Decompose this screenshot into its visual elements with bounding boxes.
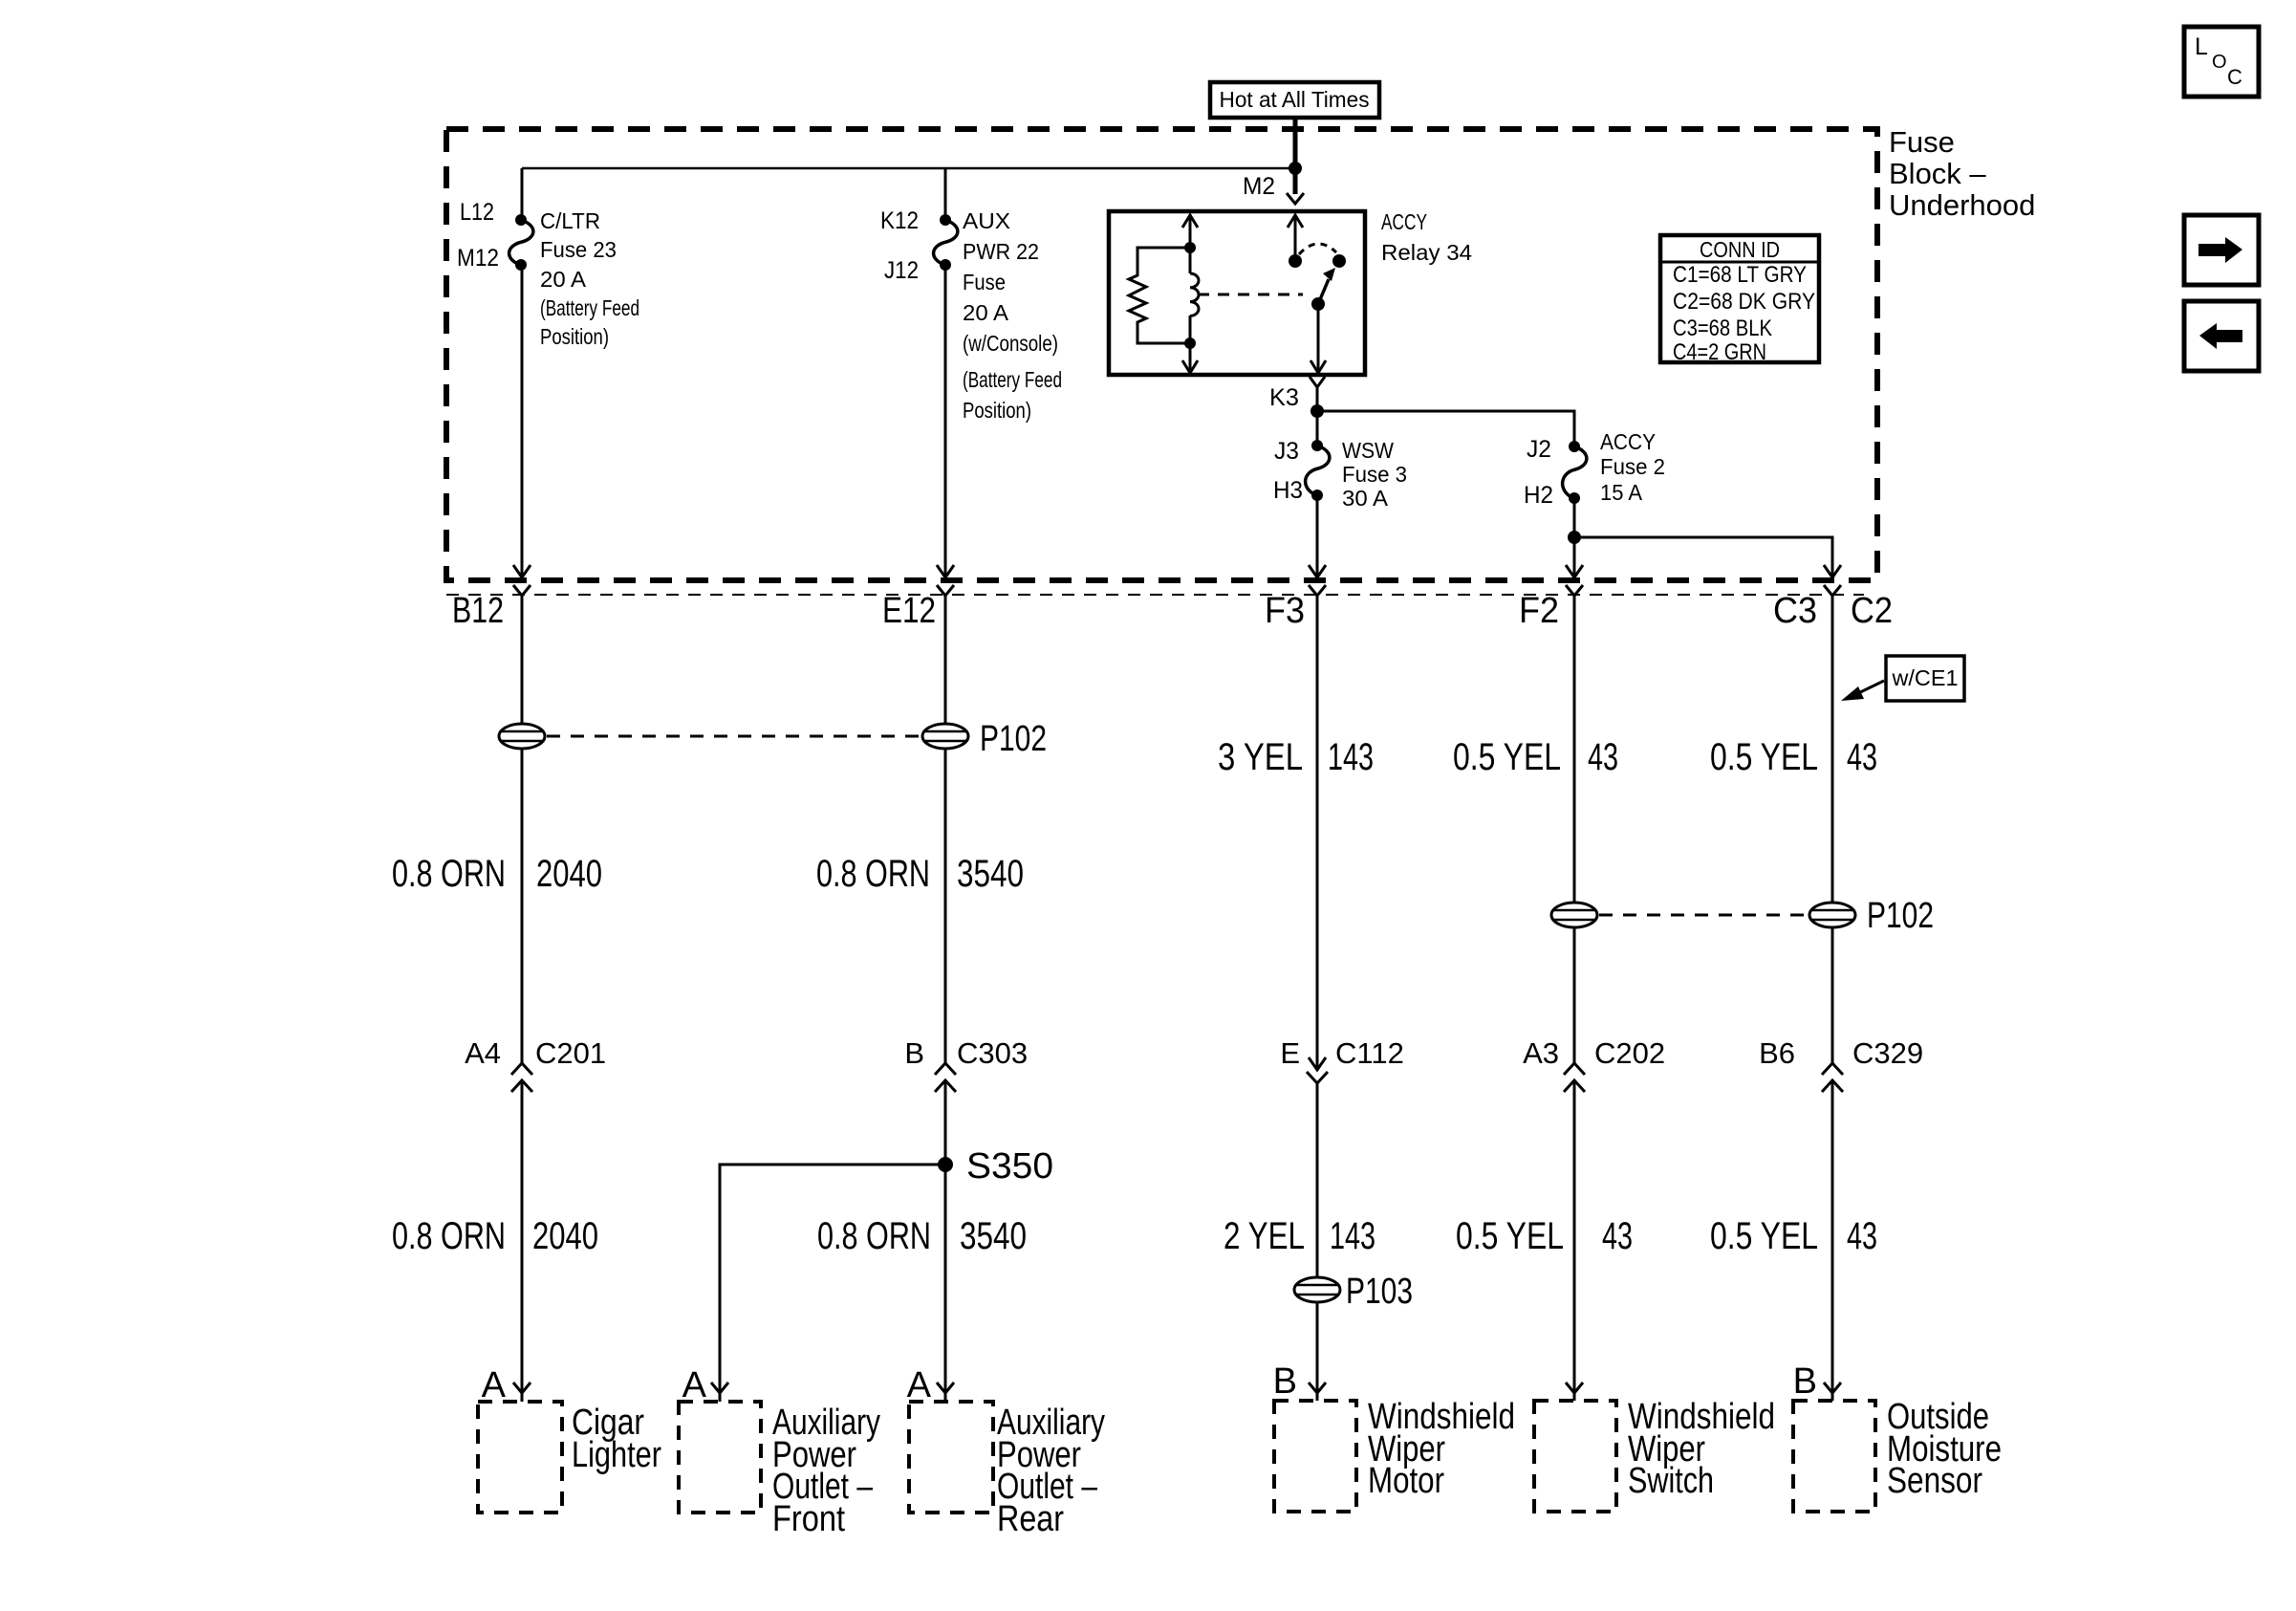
svg-text:0.8 ORN: 0.8 ORN bbox=[817, 1215, 931, 1257]
svg-text:C3=68 BLK: C3=68 BLK bbox=[1673, 316, 1772, 341]
svg-text:20 A: 20 A bbox=[963, 300, 1009, 325]
svg-text:143: 143 bbox=[1330, 1215, 1375, 1257]
svg-text:P102: P102 bbox=[1867, 896, 1934, 936]
svg-text:(Battery Feed: (Battery Feed bbox=[540, 295, 639, 320]
svg-text:Fuse 2: Fuse 2 bbox=[1600, 454, 1665, 479]
svg-text:Block –: Block – bbox=[1889, 157, 1986, 190]
svg-text:0.5 YEL: 0.5 YEL bbox=[1710, 736, 1818, 778]
svg-text:3540: 3540 bbox=[957, 853, 1024, 895]
svg-text:WSW: WSW bbox=[1342, 438, 1394, 463]
svg-text:C3: C3 bbox=[1773, 591, 1817, 631]
svg-text:Motor: Motor bbox=[1368, 1461, 1444, 1501]
svg-text:Fuse: Fuse bbox=[1889, 125, 1955, 159]
svg-text:43: 43 bbox=[1847, 1215, 1877, 1257]
svg-text:C2=68 DK GRY: C2=68 DK GRY bbox=[1673, 289, 1815, 315]
svg-text:H3: H3 bbox=[1273, 477, 1303, 504]
svg-text:C329: C329 bbox=[1852, 1036, 1923, 1070]
svg-text:K12: K12 bbox=[880, 207, 919, 234]
svg-text:ACCY: ACCY bbox=[1381, 209, 1427, 234]
svg-text:Rear: Rear bbox=[997, 1499, 1064, 1539]
svg-text:A4: A4 bbox=[465, 1036, 501, 1070]
svg-text:A: A bbox=[907, 1365, 932, 1405]
svg-text:J3: J3 bbox=[1274, 438, 1299, 465]
svg-text:0.8 ORN: 0.8 ORN bbox=[816, 853, 930, 895]
svg-text:0.5 YEL: 0.5 YEL bbox=[1456, 1215, 1564, 1257]
svg-text:2040: 2040 bbox=[536, 853, 602, 895]
svg-text:Fuse 3: Fuse 3 bbox=[1342, 462, 1407, 487]
svg-text:Relay 34: Relay 34 bbox=[1381, 240, 1472, 265]
svg-text:Switch: Switch bbox=[1628, 1461, 1714, 1501]
svg-text:C112: C112 bbox=[1335, 1036, 1404, 1070]
svg-text:L12: L12 bbox=[460, 199, 494, 226]
svg-text:0.5 YEL: 0.5 YEL bbox=[1453, 736, 1561, 778]
svg-text:C303: C303 bbox=[957, 1036, 1028, 1070]
svg-text:30 A: 30 A bbox=[1342, 486, 1389, 511]
svg-text:C4=2 GRN: C4=2 GRN bbox=[1673, 339, 1766, 365]
svg-text:15 A: 15 A bbox=[1600, 480, 1643, 505]
svg-text:J2: J2 bbox=[1527, 436, 1551, 463]
svg-text:AUX: AUX bbox=[963, 208, 1010, 233]
svg-text:B6: B6 bbox=[1759, 1036, 1795, 1070]
svg-text:Position): Position) bbox=[963, 398, 1031, 423]
svg-text:3 YEL: 3 YEL bbox=[1218, 736, 1303, 778]
svg-text:0.8 ORN: 0.8 ORN bbox=[392, 1215, 506, 1257]
svg-text:(Battery Feed: (Battery Feed bbox=[963, 367, 1062, 392]
svg-text:C1=68 LT GRY: C1=68 LT GRY bbox=[1673, 262, 1807, 288]
svg-text:Lighter: Lighter bbox=[572, 1435, 661, 1475]
svg-text:E12: E12 bbox=[882, 591, 936, 631]
svg-text:S350: S350 bbox=[966, 1146, 1053, 1186]
svg-text:P103: P103 bbox=[1346, 1272, 1413, 1312]
svg-text:A: A bbox=[682, 1365, 707, 1405]
svg-text:0.5 YEL: 0.5 YEL bbox=[1710, 1215, 1818, 1257]
svg-text:ACCY: ACCY bbox=[1600, 429, 1656, 454]
svg-text:0.8 ORN: 0.8 ORN bbox=[392, 853, 506, 895]
svg-text:CONN ID: CONN ID bbox=[1700, 237, 1780, 262]
svg-text:2 YEL: 2 YEL bbox=[1224, 1215, 1305, 1257]
svg-text:B: B bbox=[1273, 1361, 1297, 1402]
svg-text:Fuse: Fuse bbox=[963, 270, 1006, 294]
svg-text:P102: P102 bbox=[980, 719, 1047, 759]
svg-text:20 A: 20 A bbox=[540, 267, 587, 292]
svg-text:C202: C202 bbox=[1594, 1036, 1665, 1070]
svg-text:w/CE1: w/CE1 bbox=[1891, 665, 1958, 690]
svg-text:PWR 22: PWR 22 bbox=[963, 239, 1039, 264]
svg-text:3540: 3540 bbox=[960, 1215, 1027, 1257]
svg-text:Sensor: Sensor bbox=[1887, 1461, 1982, 1501]
svg-text:Hot at All Times: Hot at All Times bbox=[1220, 87, 1370, 112]
svg-text:2040: 2040 bbox=[532, 1215, 598, 1257]
svg-text:43: 43 bbox=[1847, 736, 1877, 778]
svg-text:H2: H2 bbox=[1524, 482, 1553, 509]
svg-text:J12: J12 bbox=[884, 257, 919, 284]
svg-text:B12: B12 bbox=[452, 591, 504, 631]
svg-text:A3: A3 bbox=[1523, 1036, 1559, 1070]
svg-text:K3: K3 bbox=[1269, 384, 1299, 411]
svg-text:M12: M12 bbox=[457, 245, 499, 272]
svg-text:143: 143 bbox=[1328, 736, 1374, 778]
svg-text:Position): Position) bbox=[540, 324, 609, 349]
svg-text:(w/Console): (w/Console) bbox=[963, 331, 1058, 356]
svg-text:43: 43 bbox=[1602, 1215, 1633, 1257]
svg-text:Front: Front bbox=[772, 1499, 845, 1539]
svg-text:C2: C2 bbox=[1851, 591, 1893, 631]
svg-text:Fuse 23: Fuse 23 bbox=[540, 237, 617, 262]
svg-text:E: E bbox=[1280, 1036, 1300, 1070]
svg-text:Underhood: Underhood bbox=[1889, 188, 2035, 222]
svg-text:B: B bbox=[904, 1036, 924, 1070]
svg-text:A: A bbox=[482, 1365, 507, 1405]
svg-text:C: C bbox=[2227, 65, 2242, 89]
svg-text:M2: M2 bbox=[1243, 173, 1275, 200]
svg-text:F2: F2 bbox=[1519, 591, 1559, 631]
svg-text:O: O bbox=[2212, 52, 2227, 73]
svg-text:F3: F3 bbox=[1265, 591, 1305, 631]
svg-text:C201: C201 bbox=[535, 1036, 606, 1070]
svg-text:B: B bbox=[1793, 1361, 1817, 1402]
svg-text:L: L bbox=[2195, 33, 2208, 60]
svg-text:43: 43 bbox=[1588, 736, 1618, 778]
svg-text:C/LTR: C/LTR bbox=[540, 208, 600, 233]
